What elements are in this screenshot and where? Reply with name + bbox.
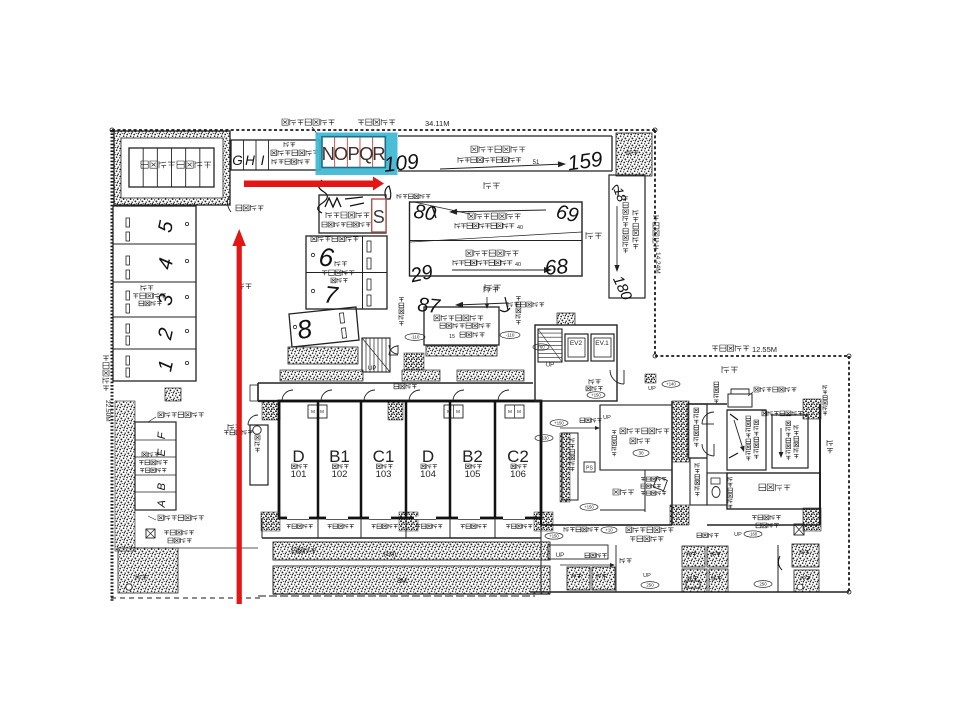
svg-text:-110: -110	[411, 335, 420, 340]
svg-text:UP: UP	[648, 386, 656, 392]
svg-text:104: 104	[420, 469, 436, 480]
svg-text:250: 250	[646, 583, 654, 588]
svg-text:UP: UP	[556, 553, 564, 559]
svg-text:UP: UP	[546, 363, 554, 369]
svg-text:69: 69	[554, 201, 580, 227]
svg-text:40: 40	[515, 262, 521, 268]
svg-text:D: D	[422, 447, 434, 466]
svg-text:C1: C1	[373, 447, 395, 466]
svg-text:P: P	[347, 143, 359, 164]
svg-text:UP: UP	[603, 415, 611, 421]
svg-text:102: 102	[332, 469, 348, 480]
svg-text:B: B	[156, 483, 169, 491]
svg-text:UP: UP	[643, 573, 651, 579]
svg-text:PS: PS	[586, 466, 593, 472]
svg-text:87: 87	[416, 294, 441, 318]
svg-text:M: M	[320, 409, 324, 414]
svg-text:UP: UP	[734, 532, 742, 538]
svg-text:+140: +140	[666, 382, 676, 387]
svg-text:O: O	[334, 143, 348, 164]
svg-text:30: 30	[638, 451, 644, 456]
svg-text:68: 68	[544, 255, 570, 280]
svg-text:B1: B1	[329, 447, 350, 466]
svg-text:EV2: EV2	[570, 340, 583, 347]
svg-text:+10: +10	[605, 528, 613, 533]
svg-text:-110: -110	[506, 333, 515, 338]
svg-text:EV.1: EV.1	[595, 340, 609, 347]
svg-text:+150: +150	[549, 534, 559, 539]
svg-text:+150: +150	[584, 505, 594, 510]
svg-text:105: 105	[465, 469, 481, 480]
svg-text:3M: 3M	[397, 578, 407, 585]
svg-text:159: 159	[566, 148, 604, 176]
svg-text:M: M	[311, 409, 315, 414]
svg-text:34.11M: 34.11M	[425, 119, 449, 128]
svg-text:I: I	[261, 153, 265, 168]
svg-text:M: M	[517, 409, 521, 414]
svg-text:106: 106	[510, 469, 526, 480]
svg-text:15: 15	[449, 334, 455, 340]
svg-text:103: 103	[376, 469, 392, 480]
svg-text:H: H	[245, 153, 255, 168]
svg-text:B2: B2	[462, 447, 483, 466]
svg-text:G: G	[232, 153, 243, 168]
svg-text:40: 40	[517, 225, 523, 231]
svg-text:250: 250	[759, 582, 767, 587]
svg-text:109: 109	[383, 150, 421, 177]
svg-text:12.55M: 12.55M	[752, 345, 777, 354]
svg-text:22.50M: 22.50M	[104, 400, 111, 422]
svg-text:+150: +150	[591, 393, 601, 398]
svg-text:D: D	[292, 447, 304, 466]
svg-text:+130: +130	[539, 436, 549, 441]
svg-text:-160: -160	[749, 532, 758, 537]
svg-text:M: M	[456, 409, 460, 414]
svg-text:S: S	[373, 207, 385, 227]
svg-text:101: 101	[291, 469, 307, 480]
svg-text:14.24M: 14.24M	[654, 252, 661, 274]
svg-text:M: M	[508, 409, 512, 414]
svg-text:+150: +150	[554, 421, 564, 426]
svg-text:(1M): (1M)	[384, 552, 396, 558]
svg-text:C2: C2	[507, 447, 529, 466]
svg-text:UP: UP	[368, 366, 376, 372]
svg-text:+60: +60	[537, 345, 545, 350]
svg-text:A: A	[156, 500, 169, 509]
